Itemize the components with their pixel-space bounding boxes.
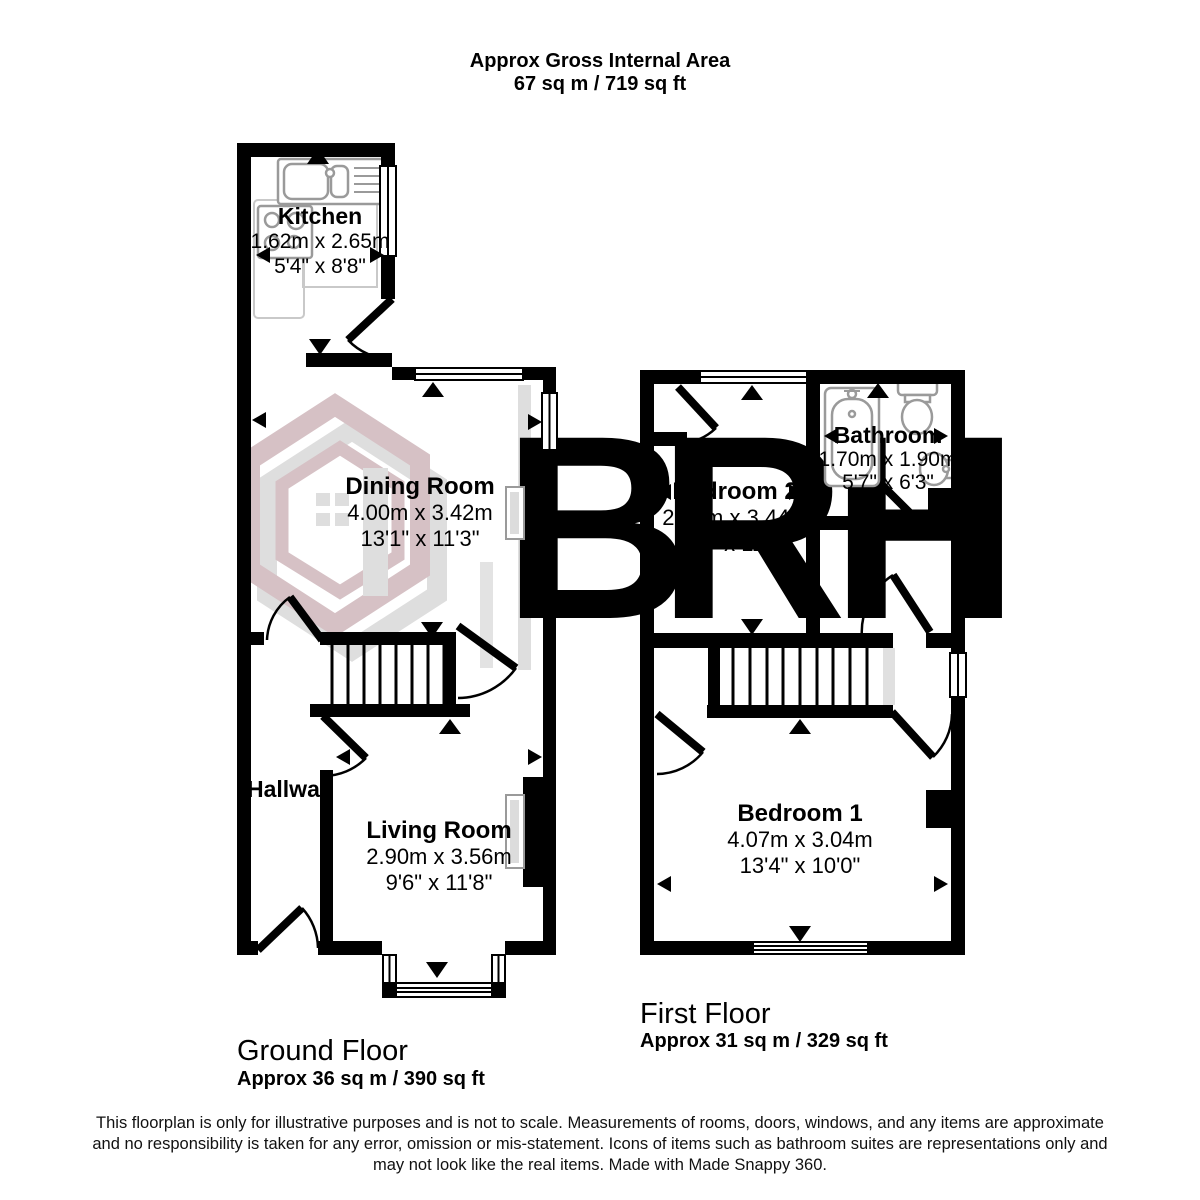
arrow-right-icon: [934, 876, 948, 892]
kitchen-imperial: 5'4" x 8'8": [274, 255, 366, 278]
bedroom2-imperial: 7'2" x 11'3": [682, 531, 789, 556]
bedroom2-name: Bedroom 2: [672, 478, 797, 505]
first-floor-label: First Floor: [640, 998, 771, 1030]
living-room-door: [323, 716, 366, 776]
living-metric: 2.90m x 3.56m: [366, 844, 512, 869]
bedroom2-metric: 2.18m x 3.44m: [662, 505, 808, 530]
disclaimer-line-2: and no responsibility is taken for any e…: [92, 1135, 1107, 1153]
floorplan-canvas: Approx Gross Internal Area 67 sq m / 719…: [0, 0, 1200, 1200]
bathroom-imperial: 5'7" x 6'3": [842, 471, 934, 494]
disclaimer: This floorplan is only for illustrative …: [92, 1114, 1107, 1174]
front-door: [258, 908, 318, 950]
watermark-window-pane: [316, 493, 330, 506]
arrow-left-icon: [657, 876, 671, 892]
stairs-landing-strip: [883, 648, 895, 705]
bedroom1-right-door: [892, 712, 952, 757]
bedroom1-left-door: [657, 714, 703, 774]
bedroom1-label: Bedroom 1 4.07m x 3.04m 13'4" x 10'0": [727, 800, 873, 878]
floorplan-page: Approx Gross Internal Area 67 sq m / 719…: [0, 0, 1200, 1200]
living-room-label: Living Room 2.90m x 3.56m 9'6" x 11'8": [366, 817, 512, 895]
ground-floor-area: Approx 36 sq m / 390 sq ft: [237, 1068, 485, 1090]
dining-name: Dining Room: [345, 473, 494, 500]
ground-floor-stairs: [332, 645, 444, 704]
kitchen-door: [348, 299, 392, 359]
living-name: Living Room: [366, 817, 511, 844]
living-imperial: 9'6" x 11'8": [386, 870, 493, 895]
first-floor-side-window: [950, 653, 966, 697]
bay-window: [383, 955, 505, 997]
gross-area-value: 67 sq m / 719 sq ft: [514, 73, 687, 95]
arrow-up-icon: [422, 382, 444, 397]
arrow-up-icon: [439, 719, 461, 734]
kitchen-metric: 1.62m x 2.65m: [251, 230, 390, 253]
arrow-left-icon: [252, 412, 266, 428]
bedroom2-label: Bedroom 2 2.18m x 3.44m 7'2" x 11'3": [662, 478, 808, 556]
bedroom1-metric: 4.07m x 3.04m: [727, 827, 873, 852]
arrow-up-icon: [789, 719, 811, 734]
arrow-down-icon: [309, 339, 331, 355]
arrow-right-icon: [528, 749, 542, 765]
watermark-window-pane: [316, 513, 330, 526]
first-floor-top-window: [700, 371, 807, 383]
disclaimer-line-3: may not look like the real items. Made w…: [373, 1156, 827, 1174]
dining-imperial: 13'1" x 11'3": [360, 526, 479, 551]
first-floor-area: Approx 31 sq m / 329 sq ft: [640, 1030, 888, 1052]
disclaimer-line-1: This floorplan is only for illustrative …: [96, 1114, 1104, 1132]
bedroom1-imperial: 13'4" x 10'0": [740, 853, 861, 878]
bedroom1-window: [753, 942, 868, 954]
hallway-name: Hallway: [247, 776, 333, 802]
kitchen-name: Kitchen: [278, 203, 362, 229]
bathroom-metric: 1.70m x 1.90m: [819, 448, 958, 471]
kitchen-sink-icon: [278, 159, 385, 204]
bathroom-name: Bathroom: [834, 422, 943, 448]
ground-floor-label: Ground Floor: [237, 1035, 408, 1067]
gross-area-title: Approx Gross Internal Area: [470, 50, 731, 72]
arrow-left-icon: [336, 749, 350, 765]
dining-side-window: [542, 393, 557, 450]
arrow-down-icon: [789, 926, 811, 942]
dining-room-label: Dining Room 4.00m x 3.42m 13'1" x 11'3": [345, 473, 494, 551]
arrow-down-icon: [426, 962, 448, 978]
bedroom1-name: Bedroom 1: [737, 800, 862, 827]
dining-top-window: [415, 368, 523, 380]
dining-metric: 4.00m x 3.42m: [347, 500, 493, 525]
